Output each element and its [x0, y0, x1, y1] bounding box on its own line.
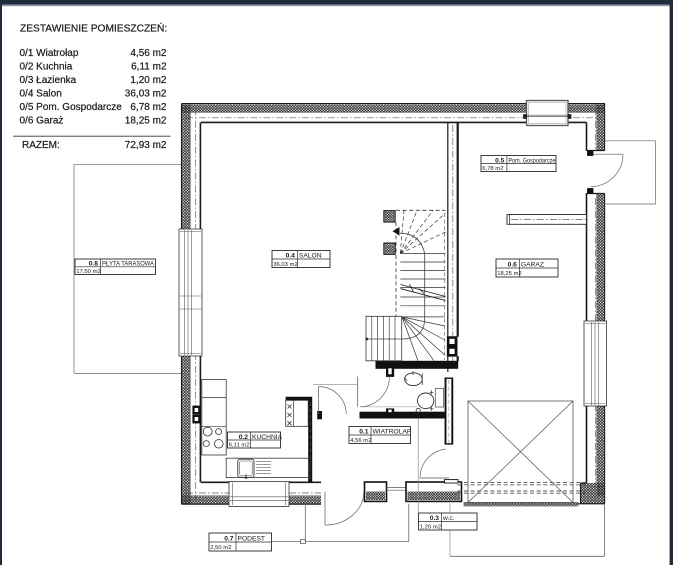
svg-text:0.2: 0.2 [239, 434, 249, 441]
svg-text:ZESTAWIENIE POMIESZCZEŃ:: ZESTAWIENIE POMIESZCZEŃ: [20, 22, 167, 35]
svg-text:18,25 m2: 18,25 m2 [497, 271, 522, 277]
svg-text:0/2 Kuchnia: 0/2 Kuchnia [20, 62, 73, 73]
svg-text:GARAZ: GARAZ [521, 262, 544, 269]
svg-text:0.4: 0.4 [286, 253, 296, 260]
svg-text:6,78 m2: 6,78 m2 [482, 166, 503, 172]
svg-text:1,20 m2: 1,20 m2 [420, 524, 441, 530]
svg-text:36,03 m2: 36,03 m2 [125, 88, 167, 99]
svg-text:0/6 Garaż: 0/6 Garaż [20, 115, 64, 126]
svg-text:36,03 m2: 36,03 m2 [273, 262, 298, 268]
svg-text:SALON: SALON [299, 253, 322, 260]
svg-text:w.c.: w.c. [442, 515, 455, 522]
svg-text:WIATROLAP: WIATROLAP [373, 429, 412, 436]
svg-text:PODEST: PODEST [238, 536, 266, 543]
svg-text:Pom. Gospodarcze: Pom. Gospodarcze [508, 157, 555, 164]
svg-text:0/5 Pom. Gospodarcze: 0/5 Pom. Gospodarcze [20, 102, 123, 113]
svg-text:6,11 m2: 6,11 m2 [131, 62, 167, 73]
svg-text:6,11 m2: 6,11 m2 [229, 442, 250, 448]
svg-text:PŁYTA TARASOWA: PŁYTA TARASOWA [102, 261, 154, 268]
svg-text:0.3: 0.3 [430, 515, 440, 522]
svg-text:2,50 m2: 2,50 m2 [210, 545, 231, 551]
svg-text:1,20 m2: 1,20 m2 [130, 75, 167, 86]
svg-text:6,78 m2: 6,78 m2 [130, 102, 167, 113]
svg-text:4,56 m2: 4,56 m2 [350, 438, 371, 444]
svg-text:0/4 Salon: 0/4 Salon [20, 88, 62, 99]
svg-text:0.6: 0.6 [508, 262, 518, 269]
svg-text:4,56 m2: 4,56 m2 [130, 48, 167, 59]
svg-text:0.7: 0.7 [224, 536, 234, 543]
svg-text:17,50 m2: 17,50 m2 [76, 269, 101, 275]
svg-text:18,25 m2: 18,25 m2 [125, 115, 167, 126]
svg-text:0.1: 0.1 [359, 429, 369, 436]
svg-text:RAZEM:: RAZEM: [22, 140, 60, 151]
svg-text:72,93 m2: 72,93 m2 [125, 140, 167, 151]
svg-text:KUCHNIA: KUCHNIA [252, 434, 283, 441]
svg-text:0.8: 0.8 [89, 261, 99, 268]
svg-text:0/3 Łazienka: 0/3 Łazienka [20, 75, 77, 86]
svg-text:0.5: 0.5 [495, 157, 505, 164]
svg-text:0/1 Wiatrołap: 0/1 Wiatrołap [20, 48, 79, 59]
